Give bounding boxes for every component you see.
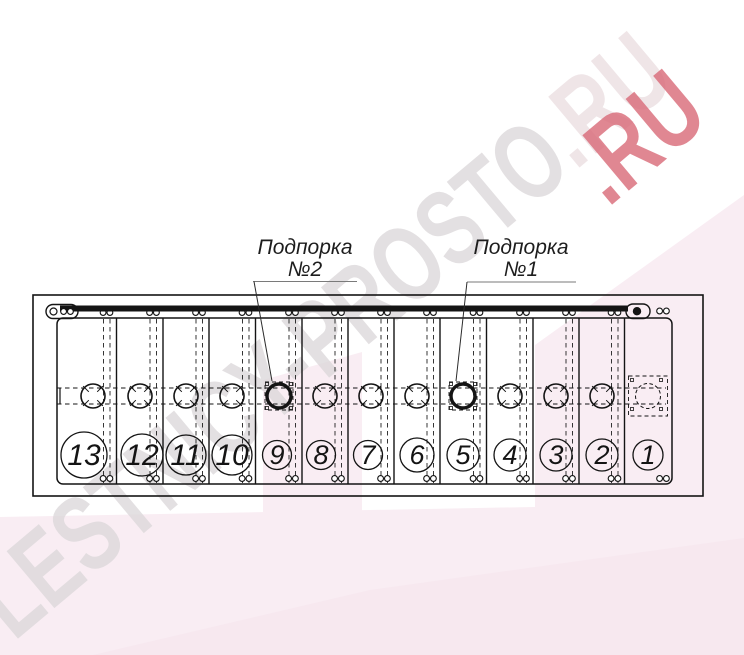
step-badge-4: 4: [494, 439, 526, 471]
step-badge-5: 5: [447, 439, 479, 471]
step-badge-11: 11: [166, 435, 206, 475]
step-number: 12: [125, 439, 159, 472]
step-badge-6: 6: [400, 438, 434, 472]
boundary-6-5: [424, 310, 440, 484]
step-number: 3: [548, 440, 563, 470]
support-1-hole-icon: [451, 384, 475, 408]
step-number: 8: [313, 440, 328, 470]
step-badge-13: 13: [61, 432, 107, 478]
technical-drawing: LESTNICY-PROSTO.RU .RU: [0, 0, 744, 655]
rail-bar: [60, 306, 628, 312]
step-badge-12: 12: [121, 434, 163, 476]
hole-icon: [498, 384, 522, 408]
rail-right-pin-icon: [633, 307, 641, 315]
step-number: 11: [170, 439, 201, 472]
step-badge-10: 10: [212, 435, 252, 475]
step-number: 1: [640, 440, 655, 470]
step-number: 4: [502, 440, 517, 470]
step-number: 6: [409, 440, 425, 470]
support-1-label-line1: Подпорка: [473, 236, 568, 259]
ladder-drawing-page: LESTNICY-PROSTO.RU .RU: [0, 0, 744, 655]
step-number: 9: [269, 440, 284, 470]
step-number: 2: [593, 440, 609, 470]
step-number: 7: [360, 440, 376, 470]
support-1-label-line2: №1: [504, 258, 538, 281]
step-number: 13: [67, 439, 101, 472]
step-number: 5: [455, 440, 471, 470]
step-number: 10: [215, 439, 249, 472]
support-1-frame: [449, 382, 477, 410]
support-2-label-line1: Подпорка: [257, 236, 352, 259]
rail-left-pin-icon: [50, 308, 57, 315]
boundary-4-3: [517, 310, 533, 484]
support-2-label-line2: №2: [288, 258, 323, 281]
